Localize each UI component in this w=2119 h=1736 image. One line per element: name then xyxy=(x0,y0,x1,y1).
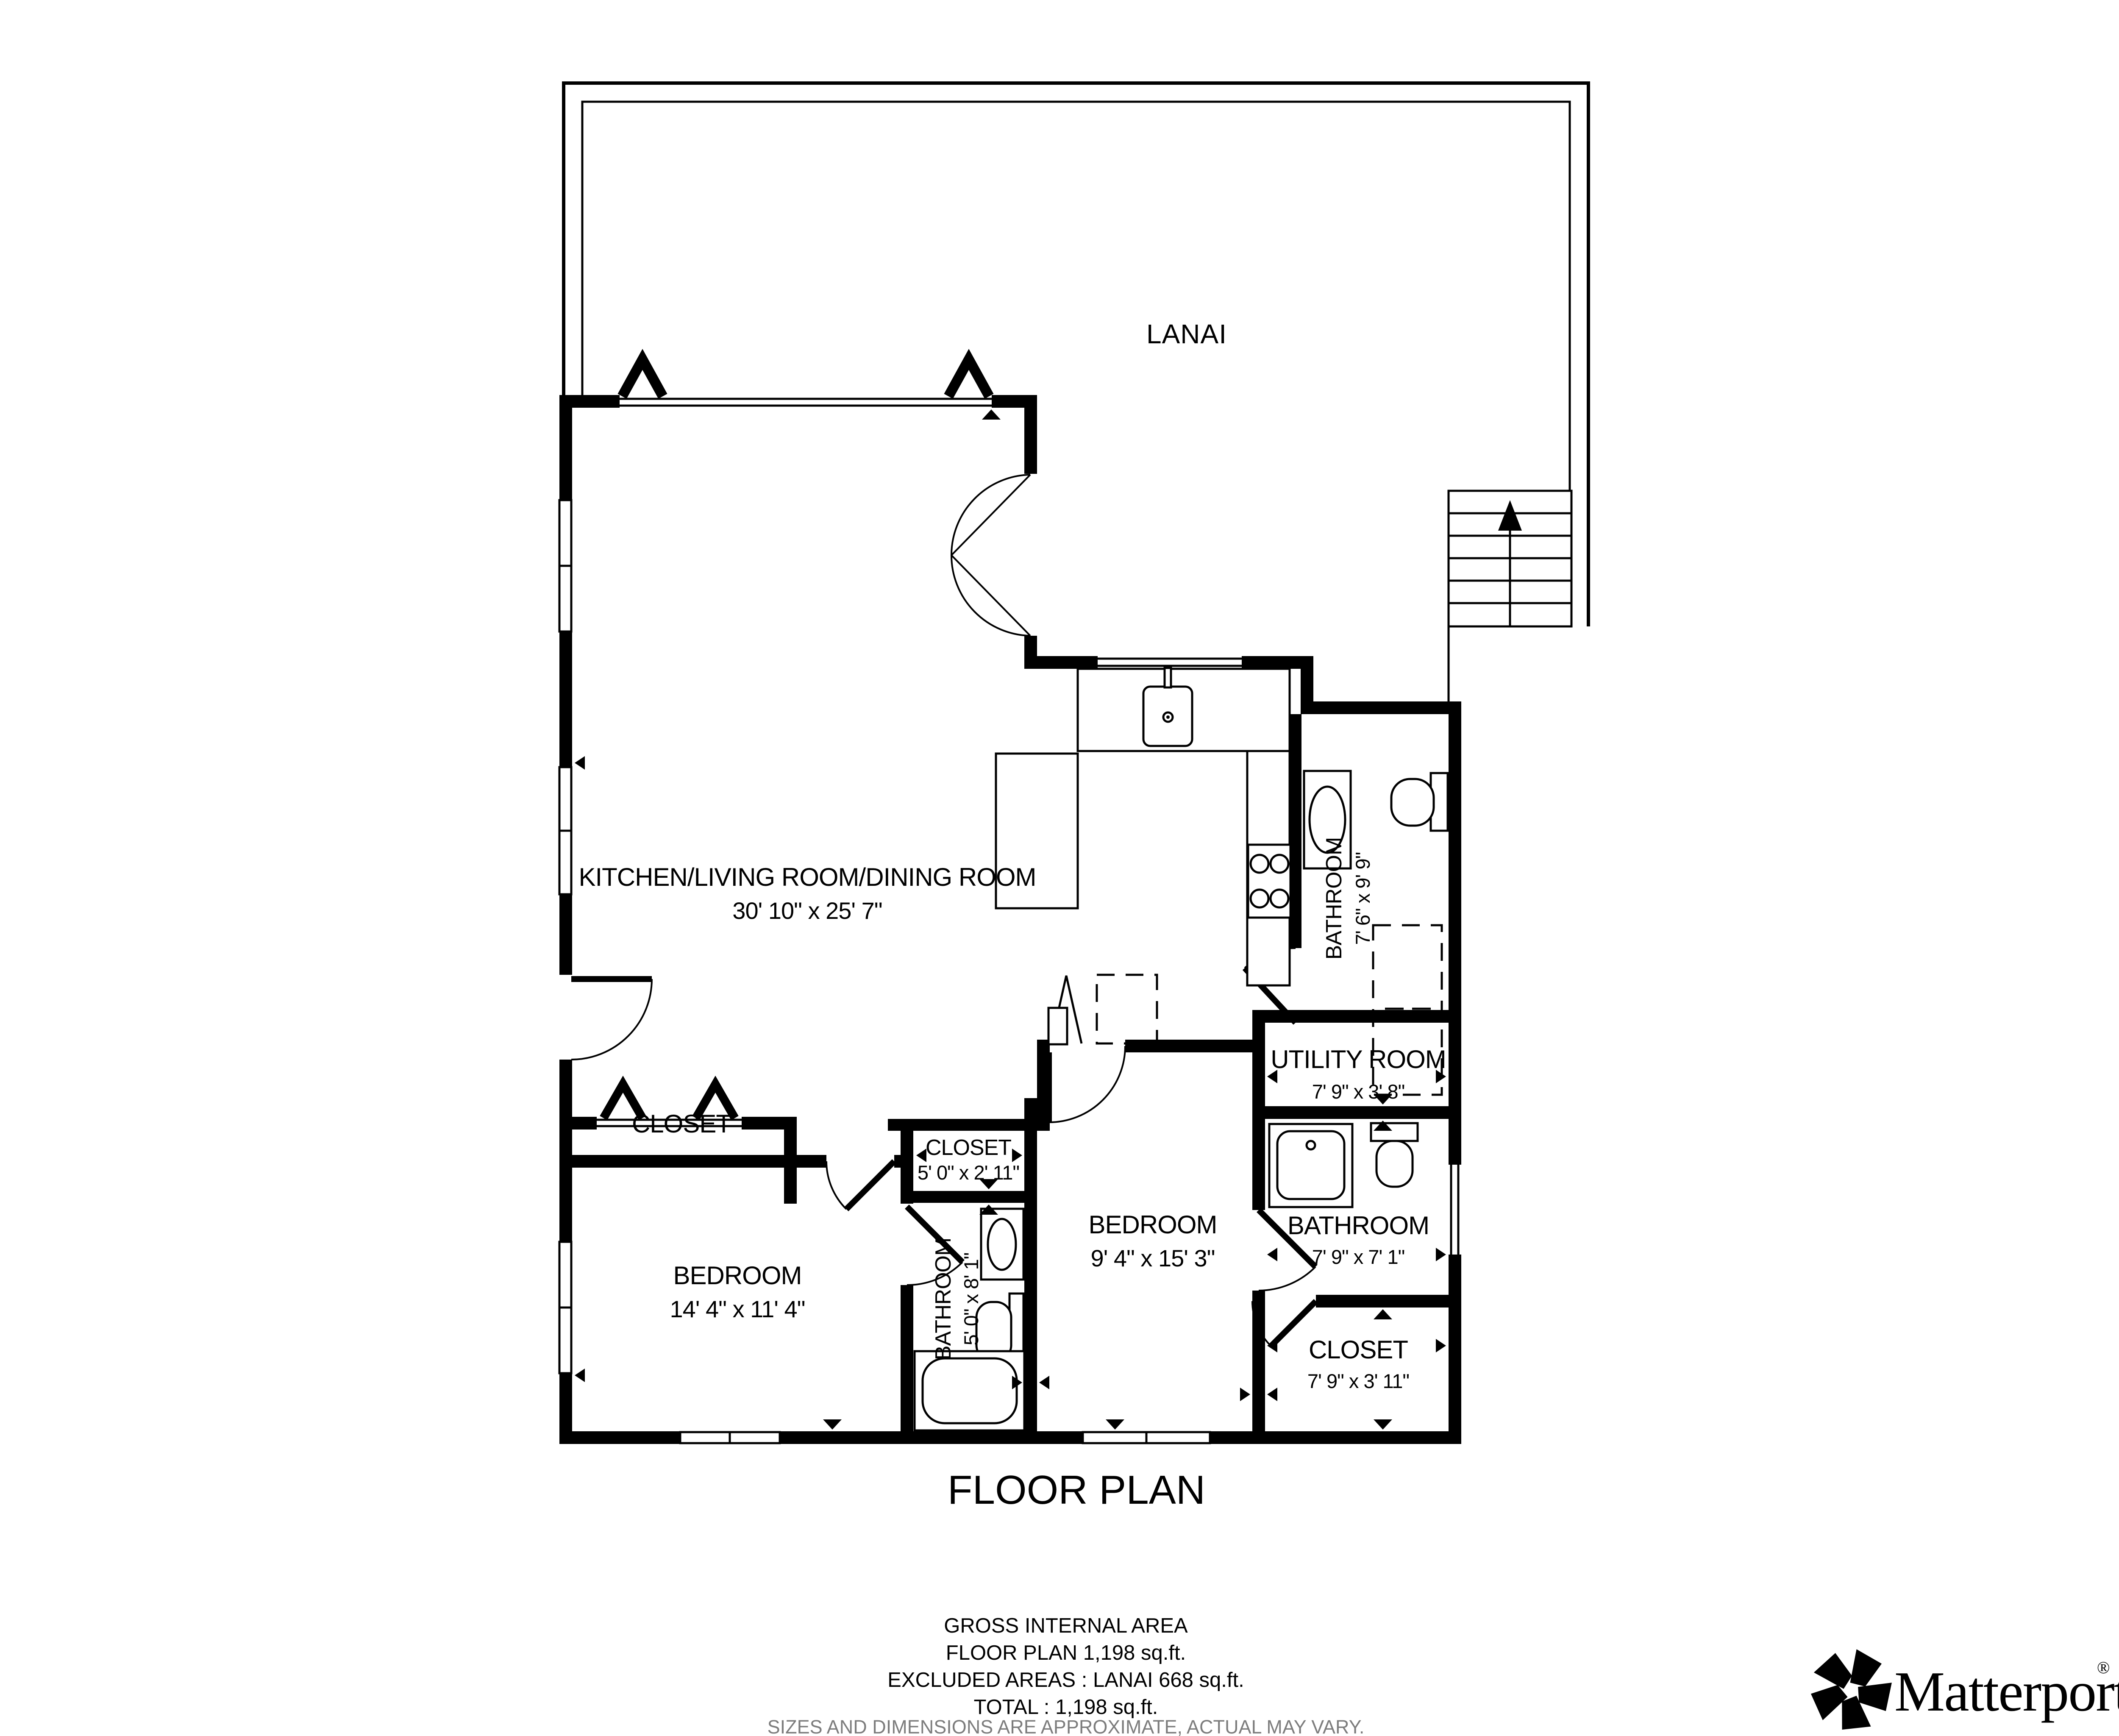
matterport-wordmark: Matterport xyxy=(1894,1660,2119,1723)
room-label-closet-right: CLOSET 7' 9" x 3' 11" xyxy=(1307,1335,1409,1392)
matterport-logo: Matterport ® xyxy=(1795,1639,2119,1736)
room-name-utility: UTILITY ROOM xyxy=(1271,1045,1446,1074)
room-dims-bathroom-top: 7' 6" x 9' 9" xyxy=(1351,852,1374,945)
water-heater-icon xyxy=(1048,975,1157,1044)
footer-floor-plan-area: FLOOR PLAN 1,198 sq.ft. xyxy=(946,1641,1186,1664)
room-name-closet-small: CLOSET xyxy=(926,1135,1011,1160)
footer-excluded-areas: EXCLUDED AREAS : LANAI 668 sq.ft. xyxy=(887,1669,1244,1691)
registered-trademark-icon: ® xyxy=(2097,1658,2110,1677)
bathroom-top-toilet-icon xyxy=(1391,773,1448,831)
bedroom-middle-door-icon xyxy=(1049,1046,1125,1122)
footer-total-area: TOTAL : 1,198 sq.ft. xyxy=(974,1696,1158,1719)
footer-disclaimer: SIZES AND DIMENSIONS ARE APPROXIMATE, AC… xyxy=(768,1716,1365,1736)
room-dims-kitchen: 30' 10" x 25' 7" xyxy=(732,897,882,924)
room-dims-bedroom-left: 14' 4" x 11' 4" xyxy=(670,1296,805,1322)
room-dims-closet-small: 5' 0" x 2' 11" xyxy=(918,1161,1019,1184)
entry-door-icon xyxy=(571,979,652,1060)
footer-area-summary: GROSS INTERNAL AREA FLOOR PLAN 1,198 sq.… xyxy=(768,1614,1365,1736)
floor-plan-page: LANAI KITCHEN/LIVING ROOM/DINING ROOM 30… xyxy=(0,0,2119,1736)
footer-gross-area: GROSS INTERNAL AREA xyxy=(944,1614,1188,1637)
room-name-bathroom-small: BATHROOM xyxy=(931,1238,956,1360)
bedroom-left-door-icon xyxy=(826,1161,894,1209)
cooktop-icon xyxy=(1248,845,1290,918)
french-doors-icon xyxy=(951,475,1030,636)
bathroom-right-toilet-icon xyxy=(1371,1123,1418,1187)
room-name-bedroom-middle: BEDROOM xyxy=(1088,1210,1217,1239)
bathtub-icon xyxy=(915,1351,1024,1430)
room-name-bathroom-right: BATHROOM xyxy=(1288,1211,1429,1240)
room-label-bedroom-middle: BEDROOM 9' 4" x 15' 3" xyxy=(1088,1210,1217,1271)
room-name-bathroom-top: BATHROOM xyxy=(1322,837,1346,960)
bathroom-small-sink-icon xyxy=(981,1209,1023,1280)
stairs-icon xyxy=(1449,491,1571,704)
room-label-bedroom-left: BEDROOM 14' 4" x 11' 4" xyxy=(670,1261,805,1322)
room-name-kitchen: KITCHEN/LIVING ROOM/DINING ROOM xyxy=(578,863,1036,891)
room-dims-utility: 7' 9" x 3' 8" xyxy=(1312,1080,1405,1103)
room-dims-bathroom-small: 5' 0" x 8' 1" xyxy=(960,1253,982,1346)
floor-plan-drawing: LANAI KITCHEN/LIVING ROOM/DINING ROOM 30… xyxy=(0,0,2119,1736)
room-label-closet-small: CLOSET 5' 0" x 2' 11" xyxy=(918,1135,1019,1184)
room-name-closet-right: CLOSET xyxy=(1309,1335,1408,1364)
room-label-closet-living: CLOSET xyxy=(632,1110,731,1138)
room-dims-bathroom-right: 7' 9" x 7' 1" xyxy=(1312,1246,1405,1268)
matterport-logo-icon xyxy=(1795,1639,1907,1736)
room-name-bedroom-left: BEDROOM xyxy=(673,1261,801,1290)
bathroom-right-sink-icon xyxy=(1269,1124,1352,1207)
page-title: FLOOR PLAN xyxy=(948,1467,1205,1513)
room-dims-bedroom-middle: 9' 4" x 15' 3" xyxy=(1090,1245,1215,1271)
sliding-door-icon xyxy=(620,359,992,406)
room-label-lanai: LANAI xyxy=(1146,319,1227,349)
room-dims-closet-right: 7' 9" x 3' 11" xyxy=(1307,1370,1409,1392)
room-label-kitchen-living: KITCHEN/LIVING ROOM/DINING ROOM 30' 10" … xyxy=(578,863,1036,924)
lanai-walls xyxy=(564,83,1588,626)
